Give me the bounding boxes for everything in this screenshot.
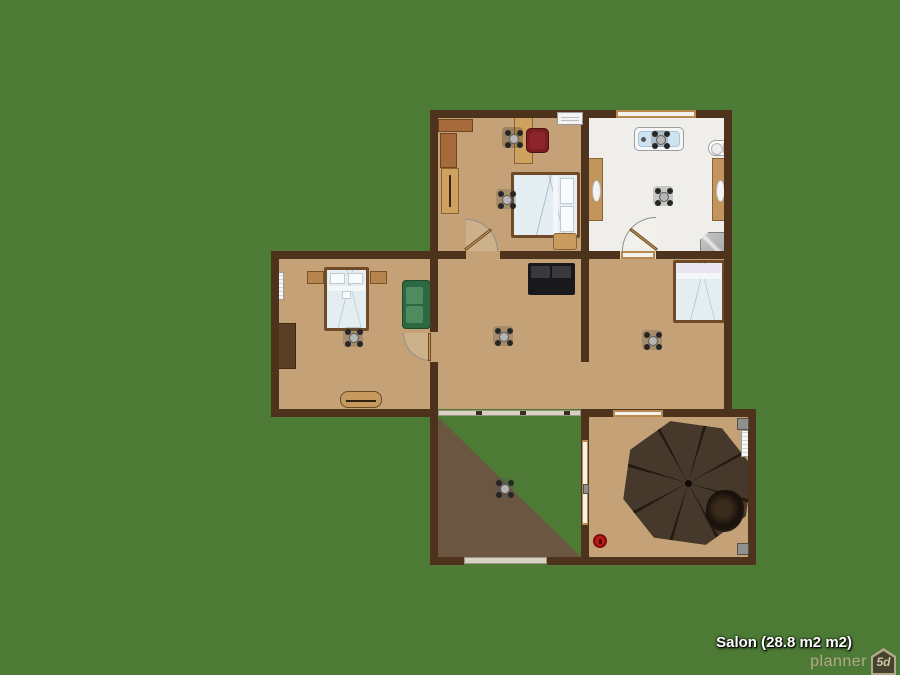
opening-salon-bedroom <box>581 362 589 409</box>
wall-patio-top[interactable] <box>581 409 756 417</box>
red-armchair[interactable] <box>526 128 549 153</box>
wall-right-mid[interactable] <box>724 251 732 417</box>
blanket-tag <box>342 291 351 299</box>
window-terrace-patio[interactable] <box>582 440 588 525</box>
room-area-label: Salon (28.8 m2 m2) <box>716 634 852 651</box>
wall-row1-left[interactable] <box>271 251 466 259</box>
wall-salon-right[interactable] <box>581 259 589 362</box>
dresser[interactable] <box>277 323 296 369</box>
wall-right-top[interactable] <box>724 110 732 259</box>
corner-tile <box>737 418 749 430</box>
corner-tile <box>737 543 749 555</box>
mirror-cabinet-left[interactable] <box>588 158 603 221</box>
ac-unit[interactable] <box>557 112 583 125</box>
pillow <box>560 178 574 204</box>
door-opening <box>466 251 500 259</box>
sheet <box>677 273 721 279</box>
corner-shelf[interactable] <box>438 119 473 132</box>
nightstand-right[interactable] <box>370 271 387 284</box>
brand-badge-house-icon: 5d <box>871 648 896 675</box>
wall-bottom-patio[interactable] <box>589 557 756 565</box>
glass-wall-salon-terrace[interactable] <box>438 410 581 416</box>
foot-chest[interactable] <box>553 233 577 250</box>
wall-row2-left[interactable] <box>271 409 438 417</box>
double-bed-mid-left[interactable] <box>324 267 369 331</box>
wall-terrace-left[interactable] <box>430 409 438 565</box>
wall-patio-right[interactable] <box>748 409 756 565</box>
office-chair[interactable] <box>502 127 523 148</box>
pillow <box>348 273 363 284</box>
ceiling-fan[interactable] <box>494 478 514 498</box>
pillow <box>330 273 345 284</box>
bench[interactable] <box>340 391 382 408</box>
wall-bottom-terrace-b[interactable] <box>547 557 589 565</box>
wall-row1-right[interactable] <box>656 251 732 259</box>
wall-left-mid[interactable] <box>271 251 279 417</box>
wall-tile <box>583 484 589 494</box>
nightstand-left[interactable] <box>307 271 324 284</box>
wall-bottom-terrace-a[interactable] <box>430 557 464 565</box>
pillow-area <box>677 264 721 273</box>
ceiling-fan[interactable] <box>642 330 662 350</box>
green-sofa[interactable] <box>402 280 431 329</box>
tall-cabinet[interactable] <box>441 168 459 214</box>
wardrobe[interactable] <box>440 133 457 168</box>
floor-plan-canvas[interactable]: Salon (28.8 m2 m2) planner 5d <box>0 0 900 675</box>
window-bedroom-mid-right[interactable] <box>621 251 655 259</box>
door-opening <box>430 332 438 362</box>
pillow <box>560 206 574 232</box>
sheet <box>553 176 558 234</box>
door-bedroom-mid-left[interactable] <box>428 333 431 361</box>
window-bathroom[interactable] <box>616 110 696 118</box>
watermark: Salon (28.8 m2 m2) planner 5d <box>716 634 896 675</box>
ceiling-fan[interactable] <box>653 186 673 206</box>
double-bed-top-left[interactable] <box>511 172 580 238</box>
planner5d-logo: planner 5d <box>716 648 896 675</box>
single-bed[interactable] <box>673 260 725 323</box>
wall-left-top[interactable] <box>430 110 438 259</box>
ceiling-fan[interactable] <box>493 326 513 346</box>
wall-row1-mid[interactable] <box>500 251 620 259</box>
black-sofa[interactable] <box>528 263 575 295</box>
ceiling-fan[interactable] <box>496 189 516 209</box>
brand-text: planner <box>810 654 867 670</box>
ceiling-fan[interactable] <box>343 327 363 347</box>
ceiling-fan-over-tub[interactable] <box>651 130 668 147</box>
wall-salon-left-upper[interactable] <box>430 259 438 332</box>
window-patio-top[interactable] <box>613 410 663 417</box>
wall-divider-top[interactable] <box>581 110 589 259</box>
glass-wall-terrace-bottom[interactable] <box>464 557 547 564</box>
fire-hydrant[interactable] <box>593 534 607 548</box>
